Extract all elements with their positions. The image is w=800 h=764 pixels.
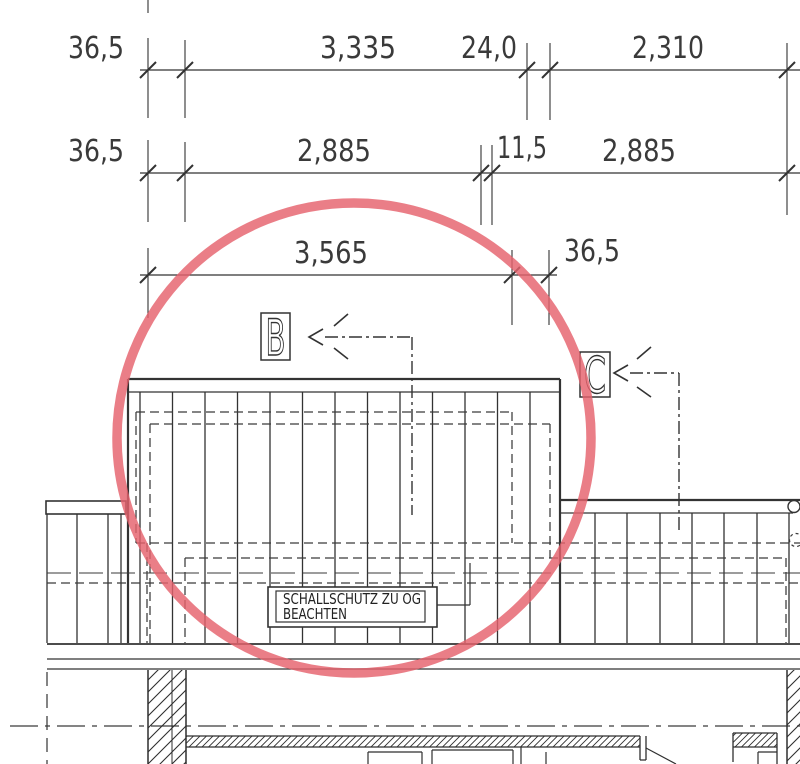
floor-plan-svg: 36,5 3,335 24,0 2,310 36,5 2,885 11,5 2,… (0, 0, 800, 764)
left-parapet-cap (46, 501, 126, 514)
interior-wall-hatch-b (733, 733, 777, 747)
wall-column-hatch (148, 670, 186, 764)
dim-row3-36-5: 36,5 (564, 234, 620, 269)
dim-row2-36-5: 36,5 (68, 134, 124, 169)
dim-row1-36-5: 36,5 (68, 31, 124, 66)
architectural-drawing: 36,5 3,335 24,0 2,310 36,5 2,885 11,5 2,… (0, 0, 800, 764)
parapet-end-post (788, 501, 800, 513)
dim-row1-24-0: 24,0 (461, 31, 517, 66)
dim-row2-2-885b: 2,885 (602, 134, 676, 169)
section-b-letter: B (266, 309, 286, 367)
dim-row2-2-885a: 2,885 (297, 134, 371, 169)
note-text-line2: BEACHTEN (283, 605, 347, 623)
dim-row1-3-335: 3,335 (320, 31, 396, 66)
right-wall-hatch (787, 670, 800, 764)
dim-row3-3-565: 3,565 (294, 236, 368, 271)
dim-row1-2-310: 2,310 (632, 31, 704, 66)
interior-wall-hatch-a (186, 736, 640, 747)
dim-row2-11-5: 11,5 (497, 131, 547, 166)
